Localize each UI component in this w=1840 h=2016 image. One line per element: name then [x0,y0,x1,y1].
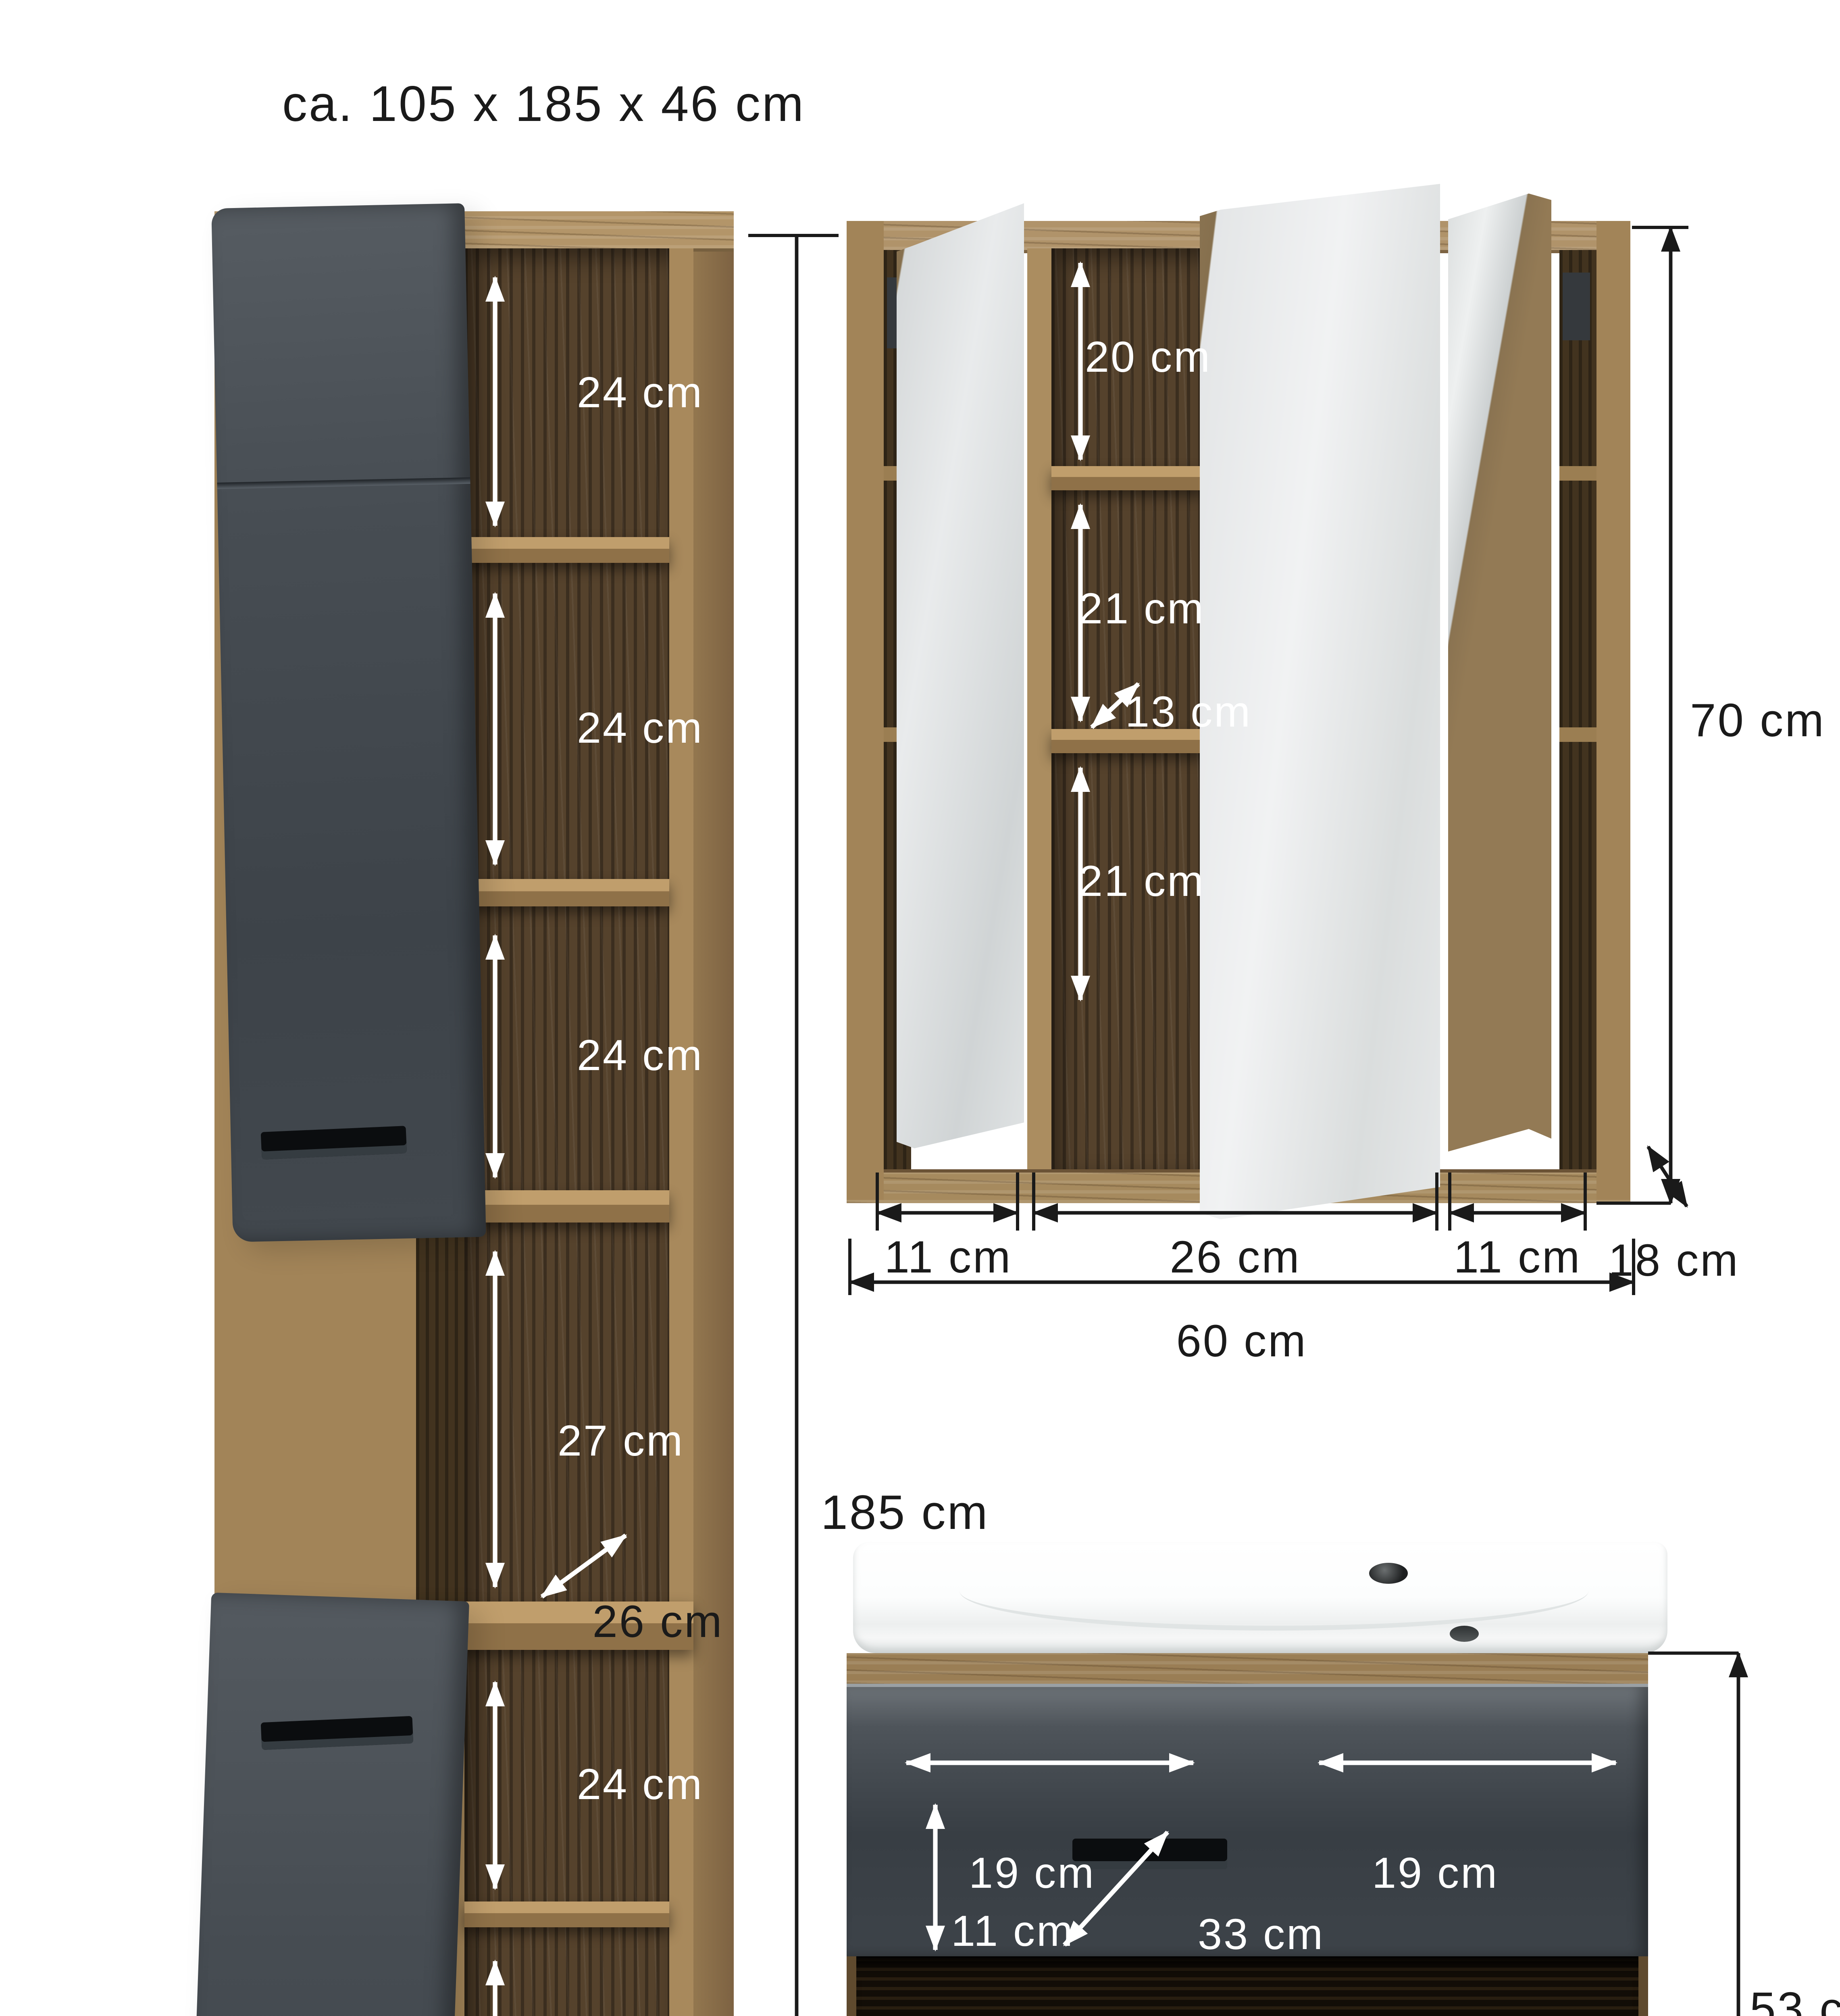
label-mirror-center-section: 26 cm [1170,1232,1301,1284]
label-mirror-top-compartment: 20 cm [1085,333,1211,383]
dim-arrow-depth-26 [542,1535,626,1597]
diagram-page: ca. 105 x 185 x 46 cm [0,0,1840,2016]
label-vanity-11: 11 cm [951,1907,1074,1957]
label-mirror-width: 60 cm [1176,1316,1307,1368]
dimension-lines [0,0,1840,2016]
label-vanity-19-left: 19 cm [969,1849,1095,1899]
label-compartment-5: 24 cm [577,1760,704,1810]
label-vanity-33: 33 cm [1198,1910,1324,1960]
label-mirror-middle-compartment: 21 cm [1078,585,1205,635]
label-compartment-2: 24 cm [577,704,704,754]
label-vanity-height: 53 cm [1750,1985,1840,2016]
label-mirror-bottom-compartment: 21 cm [1078,857,1205,907]
label-mirror-height: 70 cm [1690,696,1825,749]
label-vanity-19-right: 19 cm [1372,1849,1499,1899]
label-mirror-left-section: 11 cm [885,1232,1012,1284]
overall-dimensions-title: ca. 105 x 185 x 46 cm [282,76,805,134]
label-mirror-right-section: 11 cm [1454,1232,1582,1284]
label-compartment-3: 24 cm [577,1031,704,1081]
label-mirror-shelf-depth: 13 cm [1125,688,1252,738]
label-compartment-4: 27 cm [558,1417,684,1467]
dim-arrow-18-depth [1648,1147,1687,1206]
label-total-height: 185 cm [821,1487,989,1542]
label-compartment-1: 24 cm [577,369,704,419]
label-mirror-depth: 18 cm [1609,1235,1740,1287]
label-niche-depth: 26 cm [593,1597,724,1648]
